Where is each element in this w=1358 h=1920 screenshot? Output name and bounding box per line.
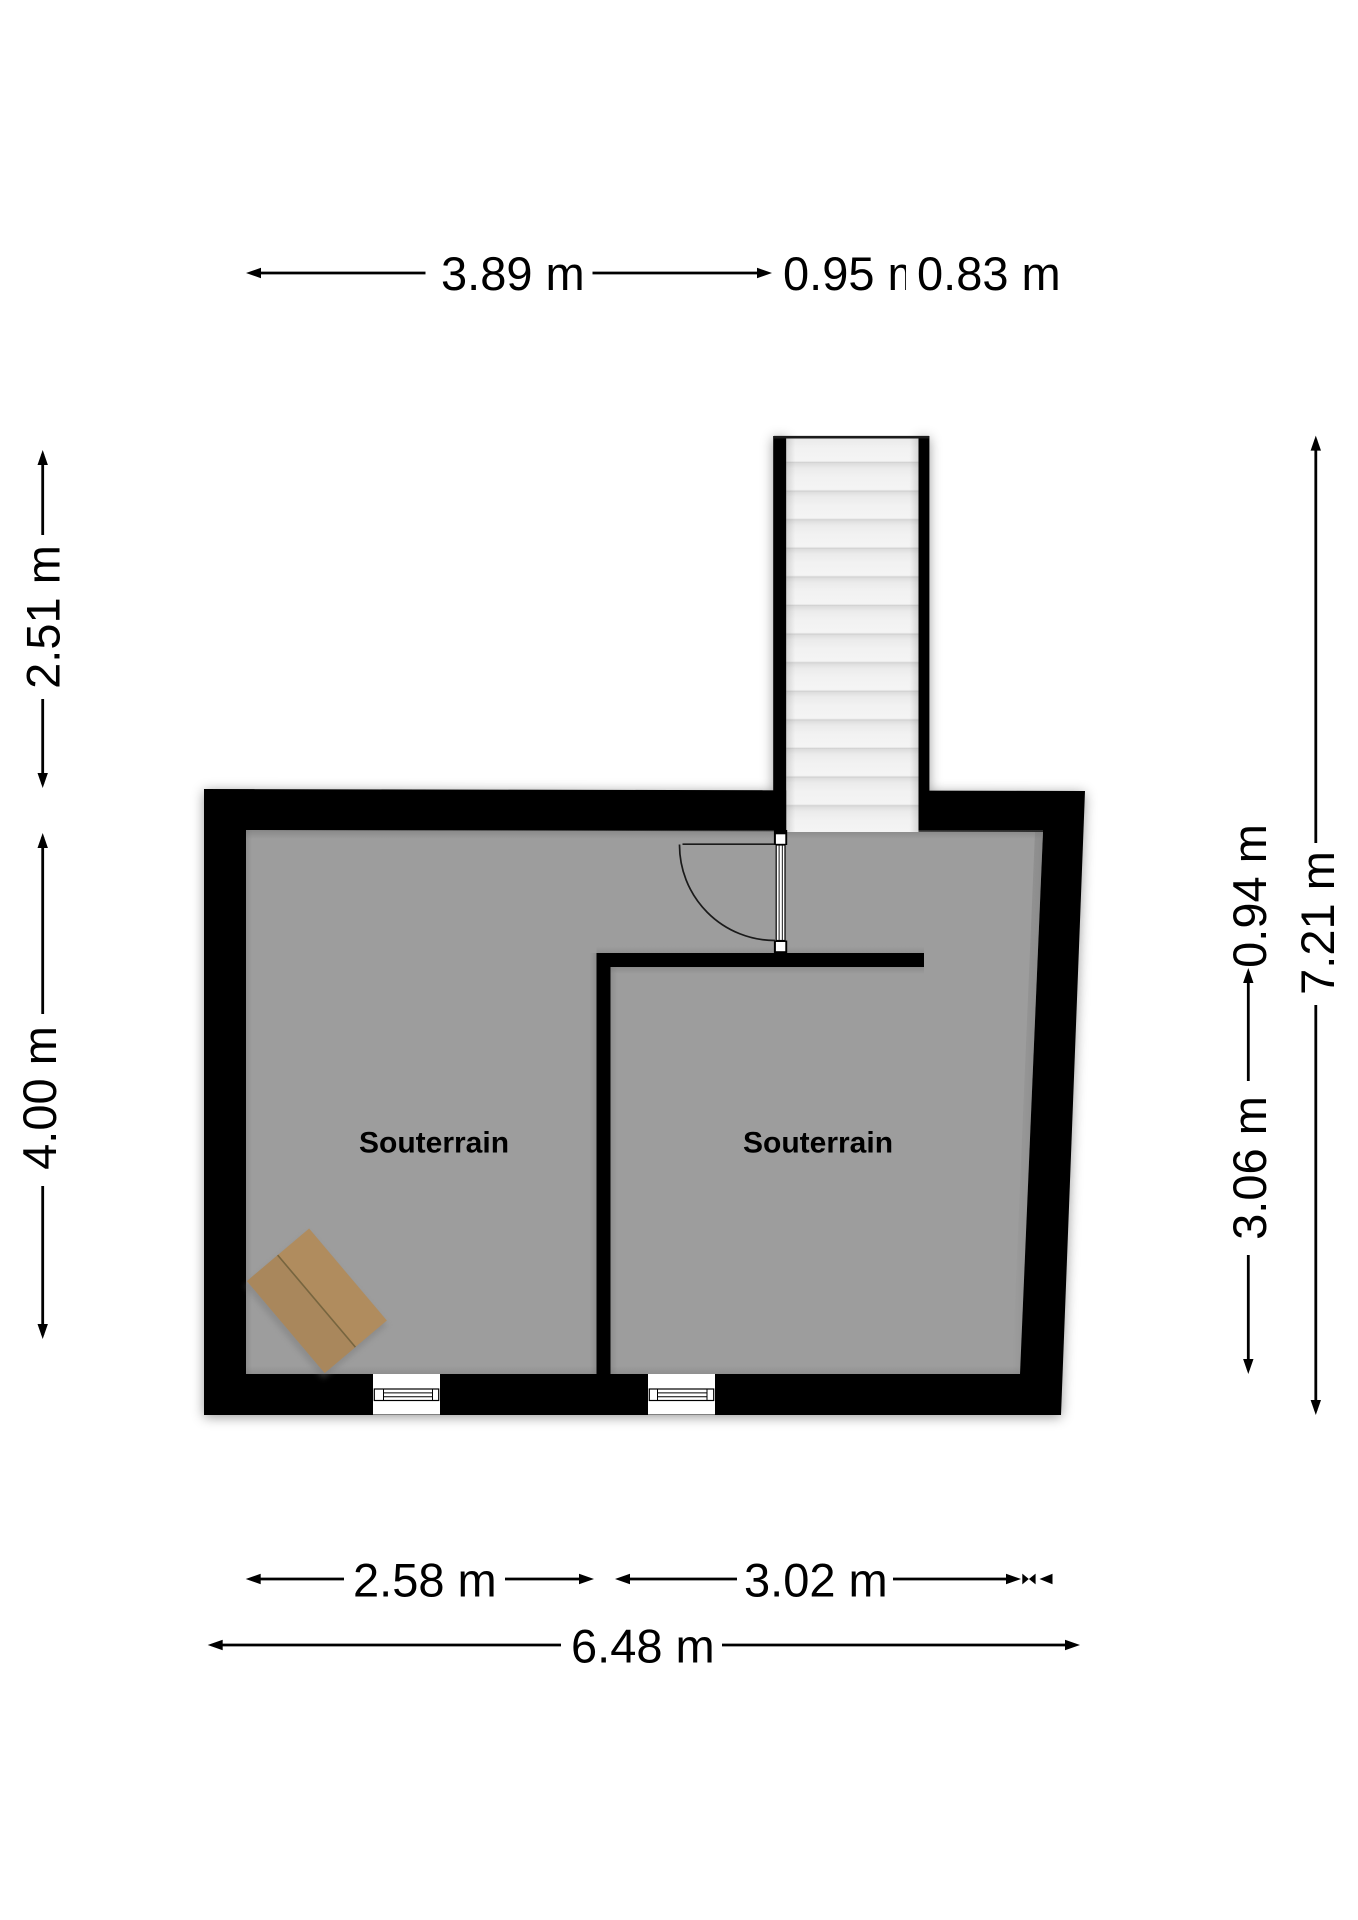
svg-text:0.95 m: 0.95 m [783,247,927,300]
svg-text:2.51 m: 2.51 m [17,545,70,689]
svg-text:4.00 m: 4.00 m [13,1026,66,1170]
svg-text:3.06 m: 3.06 m [1223,1096,1276,1240]
svg-text:0.94 m: 0.94 m [1223,824,1276,968]
svg-text:3.02 m: 3.02 m [744,1553,888,1606]
svg-text:Souterrain: Souterrain [359,1127,509,1160]
svg-text:6.48 m: 6.48 m [571,1619,715,1672]
svg-text:3.89 m: 3.89 m [441,247,585,300]
svg-text:0.83 m: 0.83 m [917,247,1061,300]
svg-text:Souterrain: Souterrain [743,1127,893,1160]
svg-text:2.58 m: 2.58 m [353,1553,497,1606]
svg-text:7.21 m: 7.21 m [1291,851,1344,995]
